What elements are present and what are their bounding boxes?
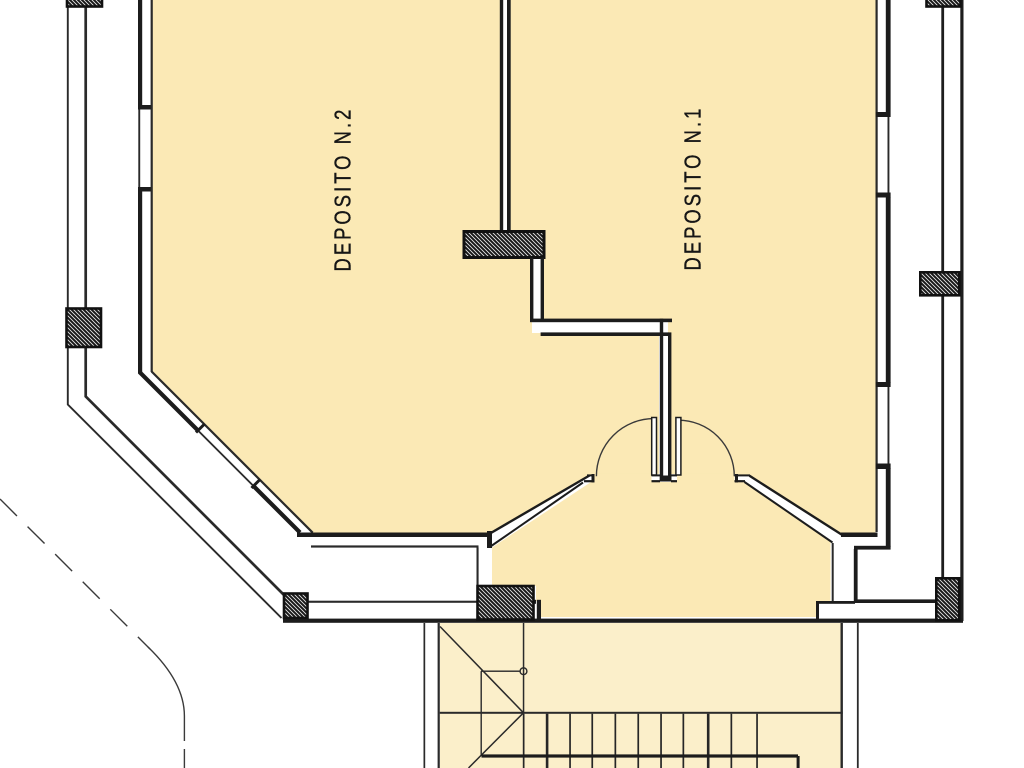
svg-text:DEPOSITO N.2: DEPOSITO N.2	[331, 107, 356, 272]
svg-text:DEPOSITO N.1: DEPOSITO N.1	[681, 106, 706, 271]
